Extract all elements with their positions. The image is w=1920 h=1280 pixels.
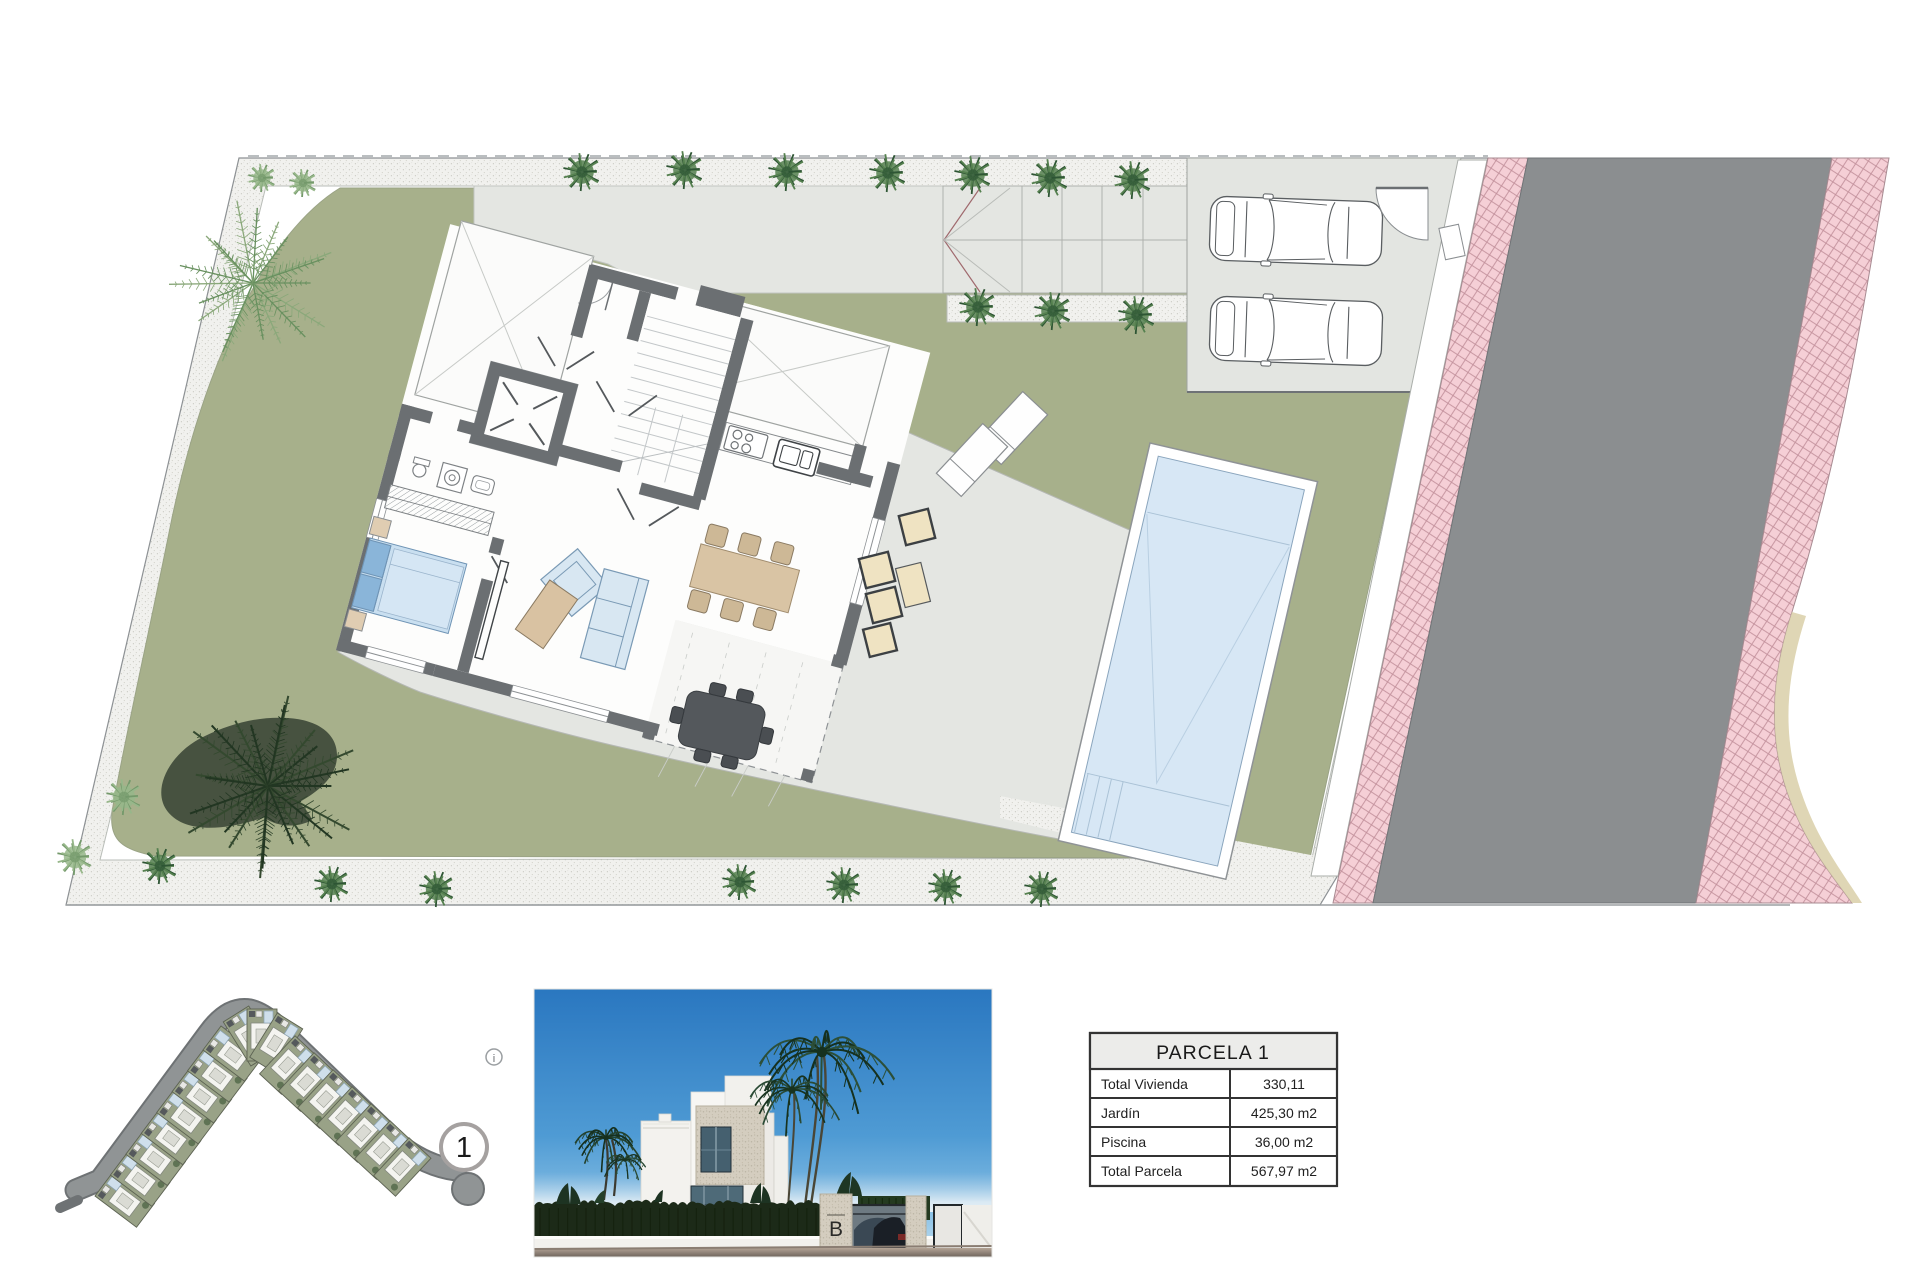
- svg-text:PARCELA 1: PARCELA 1: [1156, 1042, 1270, 1064]
- svg-text:Jardín: Jardín: [1101, 1105, 1140, 1121]
- svg-text:Total Vivienda: Total Vivienda: [1101, 1076, 1188, 1092]
- svg-text:i: i: [493, 1053, 495, 1065]
- svg-text:Total Parcela: Total Parcela: [1101, 1163, 1182, 1179]
- svg-text:330,11: 330,11: [1263, 1076, 1305, 1092]
- svg-text:B: B: [829, 1218, 843, 1241]
- svg-text:36,00 m2: 36,00 m2: [1255, 1134, 1314, 1150]
- svg-text:425,30 m2: 425,30 m2: [1251, 1105, 1317, 1121]
- svg-text:Piscina: Piscina: [1101, 1134, 1146, 1150]
- svg-text:567,97 m2: 567,97 m2: [1251, 1163, 1317, 1179]
- svg-text:1: 1: [456, 1132, 472, 1164]
